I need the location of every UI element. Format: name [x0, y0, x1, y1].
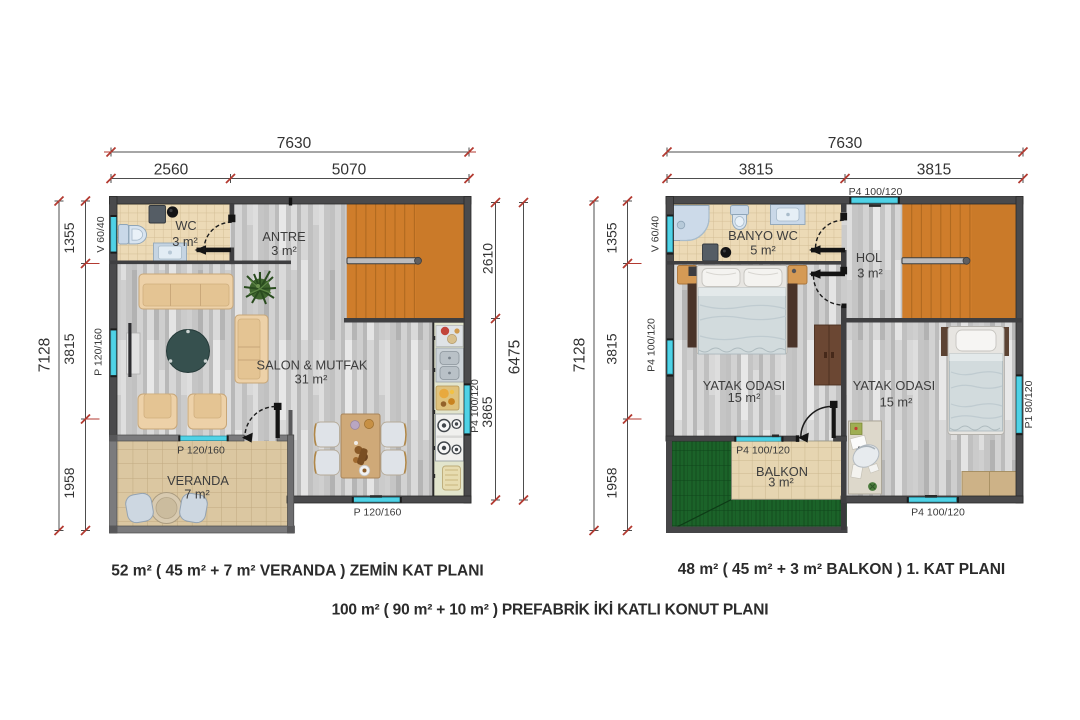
svg-text:P 120/160: P 120/160 [177, 445, 225, 457]
svg-text:ANTRE: ANTRE [262, 229, 305, 244]
svg-text:P 120/160: P 120/160 [354, 507, 402, 519]
svg-text:SALON & MUTFAK: SALON & MUTFAK [257, 358, 368, 373]
svg-text:100 m² ( 90 m² + 10 m² ) PRE: 100 m² ( 90 m² + 10 m² ) PREFABRİK İKİ K… [332, 602, 769, 619]
svg-text:2610: 2610 [480, 243, 496, 274]
svg-text:P1 80/120: P1 80/120 [1023, 380, 1035, 428]
svg-text:3815: 3815 [604, 333, 620, 364]
svg-text:3 m²: 3 m² [172, 234, 198, 249]
svg-text:7 m²: 7 m² [184, 487, 210, 502]
svg-text:1355: 1355 [61, 222, 77, 253]
svg-text:2560: 2560 [154, 162, 189, 179]
svg-text:7128: 7128 [37, 338, 54, 372]
svg-text:6475: 6475 [507, 340, 524, 374]
svg-text:3865: 3865 [479, 396, 495, 427]
svg-text:3815: 3815 [739, 162, 773, 179]
svg-text:15 m²: 15 m² [880, 395, 913, 410]
svg-text:48 m² ( 45 m² + 3 m² BALKON: 48 m² ( 45 m² + 3 m² BALKON ) 1. KAT PLA… [678, 561, 1005, 578]
svg-text:HOL: HOL [856, 250, 882, 265]
svg-text:3815: 3815 [61, 333, 77, 364]
svg-text:7630: 7630 [277, 135, 312, 152]
svg-text:3 m²: 3 m² [857, 266, 883, 281]
svg-text:BANYO WC: BANYO WC [728, 228, 798, 243]
svg-text:3 m²: 3 m² [271, 243, 297, 258]
svg-text:WC: WC [175, 218, 196, 233]
svg-text:1958: 1958 [61, 467, 77, 498]
svg-text:1355: 1355 [604, 222, 620, 253]
svg-text:V 60/40: V 60/40 [95, 216, 107, 252]
svg-text:P4 100/120: P4 100/120 [849, 186, 903, 198]
svg-text:P4 100/120: P4 100/120 [911, 507, 965, 519]
svg-text:5070: 5070 [332, 162, 367, 179]
svg-text:3 m²: 3 m² [768, 475, 794, 490]
svg-text:YATAK ODASI: YATAK ODASI [853, 378, 936, 393]
svg-text:31 m²: 31 m² [295, 372, 328, 387]
svg-text:7630: 7630 [828, 135, 863, 152]
svg-text:5 m²: 5 m² [750, 243, 776, 258]
svg-text:V 60/40: V 60/40 [650, 216, 662, 252]
svg-text:52 m² ( 45 m² + 7 m² VERANDA: 52 m² ( 45 m² + 7 m² VERANDA ) ZEMİN KAT… [111, 563, 483, 580]
svg-text:P4 100/120: P4 100/120 [646, 318, 658, 372]
svg-text:1958: 1958 [604, 467, 620, 498]
svg-text:7128: 7128 [572, 338, 589, 372]
svg-text:15 m²: 15 m² [728, 390, 761, 405]
svg-text:P 120/160: P 120/160 [93, 328, 105, 376]
svg-text:3815: 3815 [917, 162, 951, 179]
svg-text:P4 100/120: P4 100/120 [736, 445, 790, 457]
